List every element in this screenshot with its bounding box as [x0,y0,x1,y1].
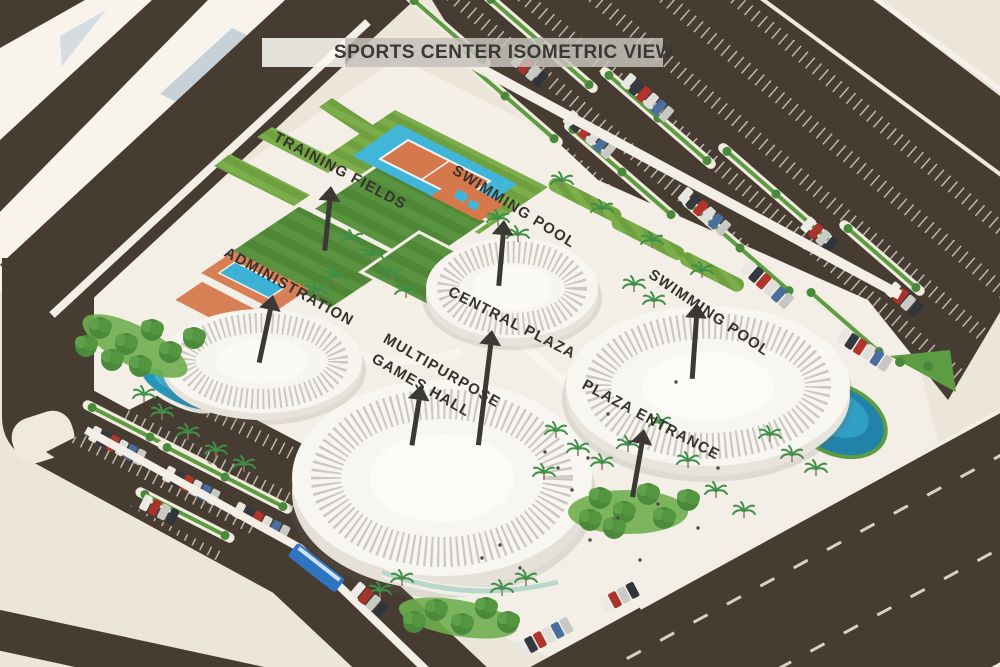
title-banner-lead [262,38,345,67]
title-banner: SPORTS CENTER ISOMETRIC VIEW [345,38,663,67]
building-games-hall [288,380,596,598]
up-arrow-icon [479,329,503,347]
up-arrow-icon [492,219,515,236]
sports-center-rendering: TRAINING FIELDS SWIMMING POOL ADMINISTRA… [0,0,1000,667]
up-arrow-icon [318,185,341,202]
